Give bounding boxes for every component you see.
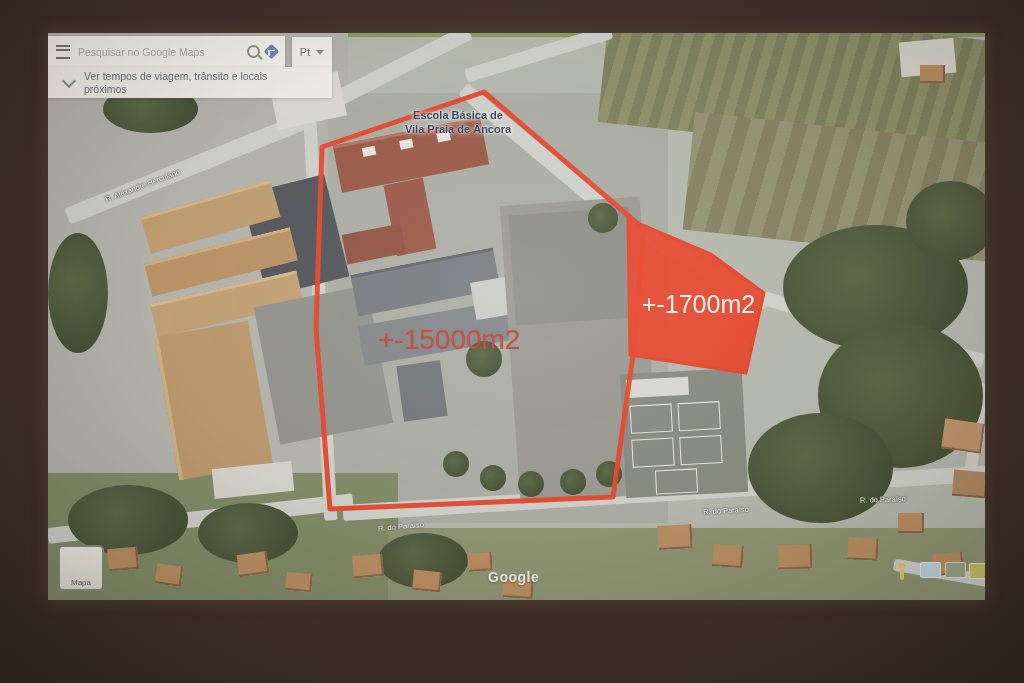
travel-times-suggestion[interactable]: Ver tempos de viagem, trânsito e locais … — [48, 67, 332, 98]
imagery-thumbnail[interactable] — [969, 563, 985, 579]
area-annotation-large: +-15000m2 — [378, 324, 558, 356]
imagery-thumbnail[interactable] — [945, 562, 966, 578]
language-control[interactable]: Pt — [292, 37, 332, 67]
suggestion-text: Ver tempos de viagem, trânsito e locais … — [84, 70, 284, 95]
search-input[interactable] — [76, 45, 241, 59]
menu-icon[interactable] — [56, 45, 70, 59]
school-label-line2: Vila Praia de Âncora — [373, 122, 543, 136]
pegman-icon[interactable] — [897, 563, 907, 580]
pegman-body — [900, 569, 904, 580]
area-annotation-small: +-1700m2 — [636, 290, 761, 319]
map-type-label: Mapa — [60, 578, 102, 587]
school-map-label: Escola Básica de Vila Praia de Âncora — [373, 108, 543, 137]
imagery-thumbnail[interactable] — [920, 562, 941, 578]
chevron-down-icon — [62, 73, 76, 87]
search-panel — [48, 36, 285, 67]
map-type-toggle[interactable]: Mapa — [58, 545, 104, 591]
projected-google-maps-screenshot: R. Alexandre Herculano R. do Paraíso R. … — [48, 33, 985, 600]
search-icon[interactable] — [247, 45, 260, 58]
school-label-line1: Escola Básica de — [373, 108, 543, 122]
projector-wall: R. Alexandre Herculano R. do Paraíso R. … — [0, 0, 1024, 683]
site-boundary-polygon — [316, 92, 644, 509]
language-label: Pt — [300, 46, 310, 58]
directions-icon[interactable] — [264, 44, 280, 60]
google-watermark: Google — [488, 569, 539, 585]
caret-down-icon — [316, 50, 324, 55]
